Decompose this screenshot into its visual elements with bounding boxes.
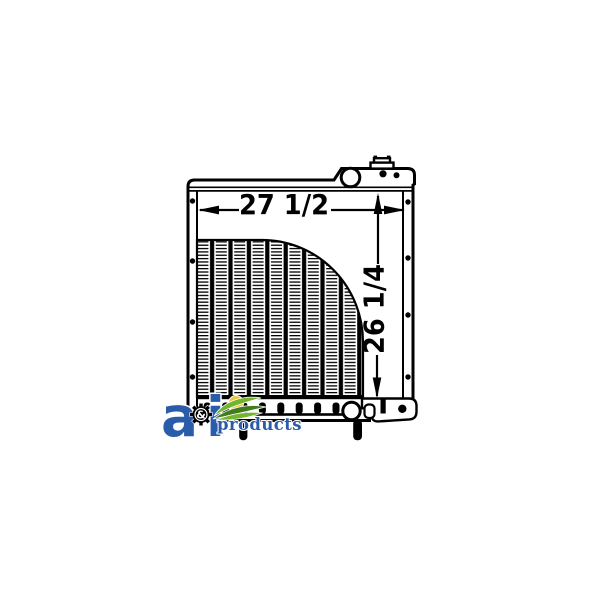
bracket-tab-white [365,405,375,419]
diagram-canvas: 27 1/2 26 1/4 a i [0,0,600,600]
drain-outlet-circle [343,402,360,419]
logo-ampersand: & [196,408,206,421]
bracket-bolt-dot [398,405,406,413]
rivet-dots-left [190,198,195,379]
height-dimension-label: 26 1/4 [359,264,391,354]
bracket-tab-black [381,400,386,414]
width-dimension-label: 27 1/2 [239,189,329,221]
logo-products-text: products [217,415,302,434]
filler-neck-circle [341,168,360,187]
arrow-right-icon [384,206,405,215]
logo-gear-icon: & [190,403,213,426]
rivet-dots-right [405,199,410,379]
filler-dot-2 [394,172,400,178]
logo-letter-a: a [161,385,198,449]
arrow-down-icon [373,378,382,399]
core-hatch [197,240,363,397]
radiator-cap-icon [371,156,394,169]
filler-dot-1 [379,170,386,177]
mounting-stud-right [353,420,362,441]
width-dimension: 27 1/2 [198,189,405,221]
arrow-up-icon [374,193,383,214]
radiator-diagram: 27 1/2 26 1/4 a i [0,0,600,600]
arrow-left-icon [198,206,219,215]
